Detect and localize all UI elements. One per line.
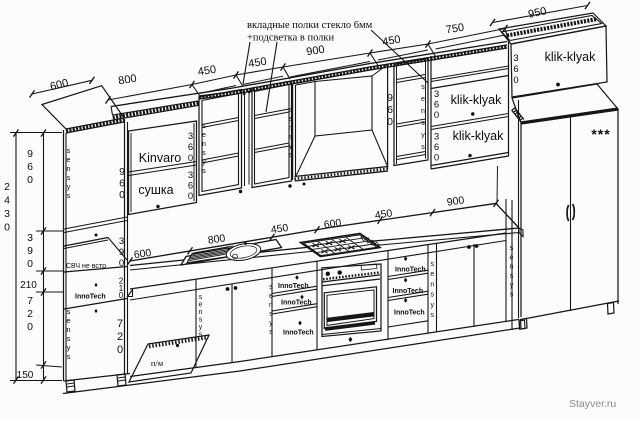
svg-text:s: s xyxy=(67,173,71,182)
svg-text:450: 450 xyxy=(270,222,289,236)
svg-text:y: y xyxy=(199,324,203,331)
svg-text:InnoTech: InnoTech xyxy=(281,300,312,307)
svg-text:s: s xyxy=(67,146,71,155)
svg-text:0: 0 xyxy=(387,116,393,128)
svg-text:s: s xyxy=(431,312,435,319)
svg-text:0: 0 xyxy=(27,321,33,333)
svg-text:InnoTech: InnoTech xyxy=(394,310,425,317)
svg-text:3: 3 xyxy=(27,232,33,244)
svg-text:s: s xyxy=(421,84,425,91)
svg-text:n: n xyxy=(510,264,514,271)
svg-text:0: 0 xyxy=(119,291,124,300)
svg-text:6: 6 xyxy=(188,142,193,153)
svg-text:n: n xyxy=(421,108,425,115)
svg-text:п/м: п/м xyxy=(151,358,164,368)
svg-text:s: s xyxy=(67,307,71,316)
svg-text:9: 9 xyxy=(27,245,33,257)
svg-text:e: e xyxy=(199,302,203,309)
svg-text:150: 150 xyxy=(17,370,34,381)
svg-text:n: n xyxy=(199,309,203,316)
svg-text:7: 7 xyxy=(27,295,33,307)
svg-text:InnoTech: InnoTech xyxy=(75,294,106,301)
svg-text:s: s xyxy=(431,292,435,299)
svg-text:6: 6 xyxy=(434,142,439,153)
svg-text:y: y xyxy=(510,282,514,289)
svg-text:2: 2 xyxy=(4,181,10,193)
svg-text:s: s xyxy=(421,120,425,127)
svg-text:y: y xyxy=(67,182,71,191)
svg-text:2: 2 xyxy=(117,331,123,343)
svg-text:e: e xyxy=(289,116,293,123)
svg-text:6: 6 xyxy=(27,161,33,173)
svg-text:вкладные полки стекло 6мм: вкладные полки стекло 6мм xyxy=(247,20,373,31)
svg-text:s: s xyxy=(199,317,203,324)
svg-text:s: s xyxy=(421,144,425,151)
svg-text:600: 600 xyxy=(323,217,342,231)
svg-text:9: 9 xyxy=(27,148,33,160)
svg-text:0: 0 xyxy=(119,189,125,201)
svg-text:3: 3 xyxy=(188,170,193,181)
svg-text:7: 7 xyxy=(117,318,123,330)
svg-text:s: s xyxy=(67,334,71,343)
svg-text:600: 600 xyxy=(133,247,152,261)
svg-text:0: 0 xyxy=(434,153,439,164)
svg-text:klik-klyak: klik-klyak xyxy=(451,93,502,107)
svg-text:0: 0 xyxy=(434,110,439,121)
svg-text:2: 2 xyxy=(27,308,33,320)
svg-text:Stayver.ru: Stayver.ru xyxy=(569,398,616,410)
svg-text:800: 800 xyxy=(207,232,226,246)
svg-text:n: n xyxy=(66,164,70,173)
svg-text:0: 0 xyxy=(119,258,124,269)
svg-text:n: n xyxy=(202,141,206,148)
svg-text:s: s xyxy=(510,292,514,299)
svg-text:3: 3 xyxy=(4,208,10,220)
svg-text:klik-klyak: klik-klyak xyxy=(453,129,504,143)
svg-text:0: 0 xyxy=(27,258,33,270)
svg-text:4: 4 xyxy=(4,195,10,207)
svg-text:s: s xyxy=(269,284,273,291)
svg-text:9: 9 xyxy=(387,92,393,104)
svg-text:n: n xyxy=(66,325,70,334)
svg-text:s: s xyxy=(202,150,206,157)
svg-text:0: 0 xyxy=(188,191,193,202)
svg-text:***: *** xyxy=(591,126,610,142)
svg-text:s: s xyxy=(269,311,273,318)
svg-text:9: 9 xyxy=(119,247,124,258)
svg-text:e: e xyxy=(421,96,425,103)
svg-text:+подсветка в полки: +подсветка в полки xyxy=(247,33,335,44)
svg-text:3: 3 xyxy=(434,89,439,100)
svg-text:InnoTech: InnoTech xyxy=(395,267,426,274)
svg-text:9: 9 xyxy=(119,166,125,178)
svg-text:e: e xyxy=(430,271,434,278)
svg-text:InnoTech: InnoTech xyxy=(283,330,314,337)
svg-text:s: s xyxy=(67,191,71,200)
svg-text:0: 0 xyxy=(513,75,518,86)
svg-text:y: y xyxy=(269,320,273,327)
svg-text:klik-klyak: klik-klyak xyxy=(545,50,596,64)
svg-text:Kinvaro: Kinvaro xyxy=(139,151,181,165)
svg-text:900: 900 xyxy=(446,194,465,208)
svg-text:6: 6 xyxy=(434,100,439,111)
svg-text:e: e xyxy=(66,155,70,164)
svg-text:InnoTech: InnoTech xyxy=(278,283,309,290)
svg-text:0: 0 xyxy=(4,222,10,234)
svg-text:e: e xyxy=(510,254,514,261)
svg-text:сушка: сушка xyxy=(138,183,173,197)
svg-text:n: n xyxy=(430,281,434,288)
svg-text:s: s xyxy=(199,294,203,301)
svg-text:3: 3 xyxy=(434,132,439,143)
svg-text:0: 0 xyxy=(27,174,33,186)
svg-text:e: e xyxy=(66,316,70,325)
svg-text:s: s xyxy=(199,332,203,339)
svg-text:s: s xyxy=(431,261,435,268)
svg-text:3: 3 xyxy=(188,131,193,142)
svg-text:s: s xyxy=(269,329,273,336)
svg-text:6: 6 xyxy=(513,64,518,75)
svg-text:n: n xyxy=(289,125,293,132)
svg-text:3: 3 xyxy=(513,53,518,64)
svg-text:450: 450 xyxy=(374,207,393,221)
svg-text:y: y xyxy=(67,343,71,352)
svg-text:6: 6 xyxy=(188,181,193,192)
svg-text:s: s xyxy=(67,352,71,361)
svg-text:s: s xyxy=(510,273,514,280)
svg-text:s: s xyxy=(202,123,206,130)
svg-text:s: s xyxy=(510,245,514,252)
svg-text:e: e xyxy=(202,132,206,139)
svg-text:s: s xyxy=(202,168,206,175)
svg-text:n: n xyxy=(269,302,273,309)
svg-text:6: 6 xyxy=(119,178,125,190)
svg-text:0: 0 xyxy=(188,153,193,164)
svg-text:y: y xyxy=(431,302,435,309)
svg-text:0: 0 xyxy=(117,344,123,356)
svg-text:3: 3 xyxy=(119,236,124,247)
svg-text:y: y xyxy=(421,132,425,139)
svg-text:y: y xyxy=(202,159,206,166)
svg-text:6: 6 xyxy=(387,104,393,116)
svg-text:210: 210 xyxy=(20,280,37,291)
svg-text:InnoTech: InnoTech xyxy=(393,288,424,295)
